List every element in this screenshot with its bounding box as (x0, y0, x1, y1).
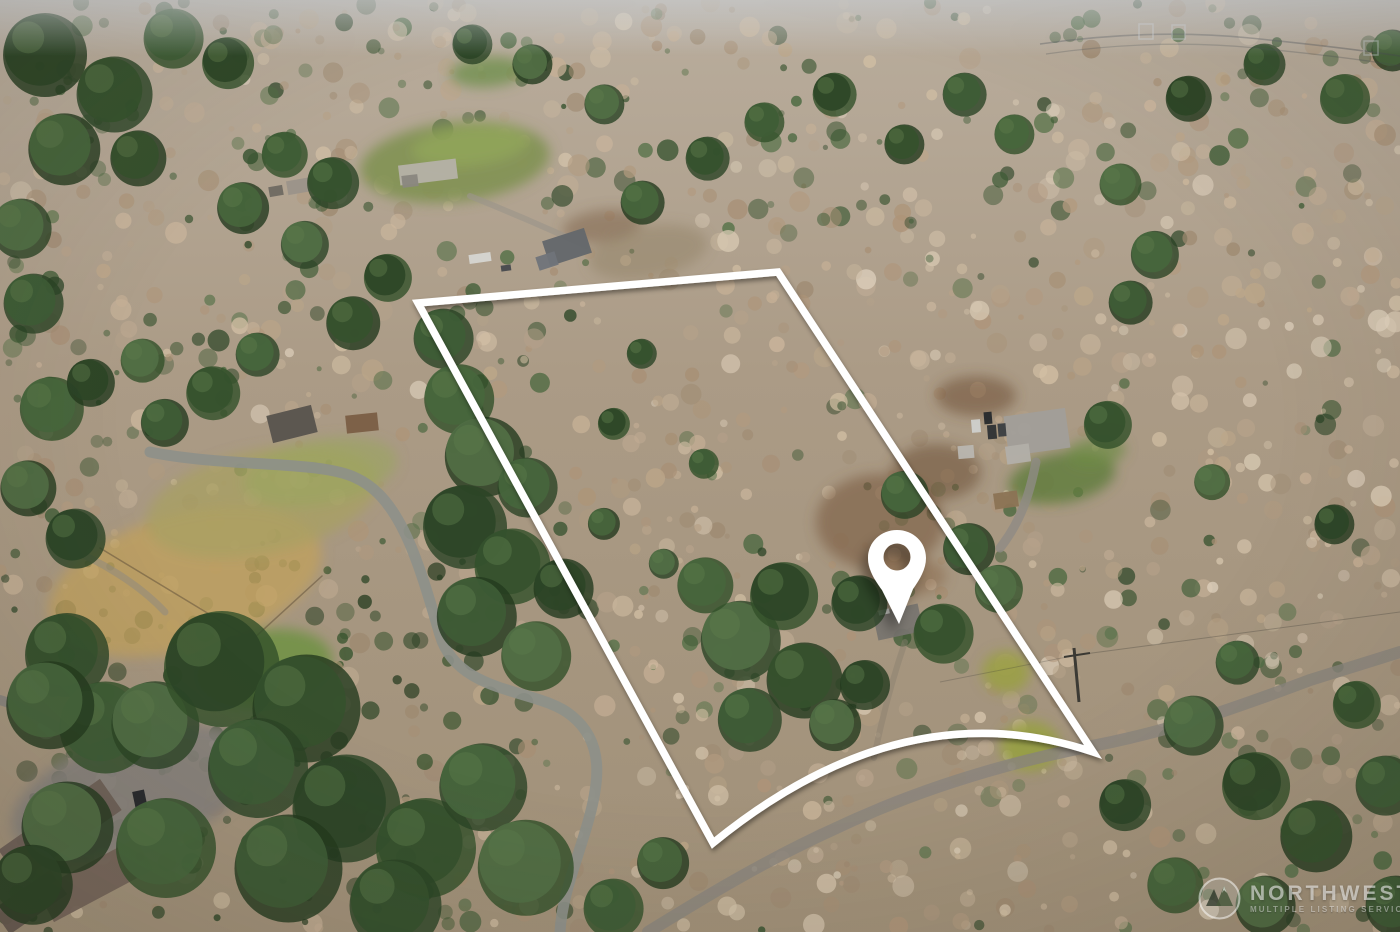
aerial-photo-canvas (0, 0, 1400, 932)
aerial-photo: NORTHWEST MULTIPLE LISTING SERVICE (0, 0, 1400, 932)
vignette (0, 0, 1400, 932)
